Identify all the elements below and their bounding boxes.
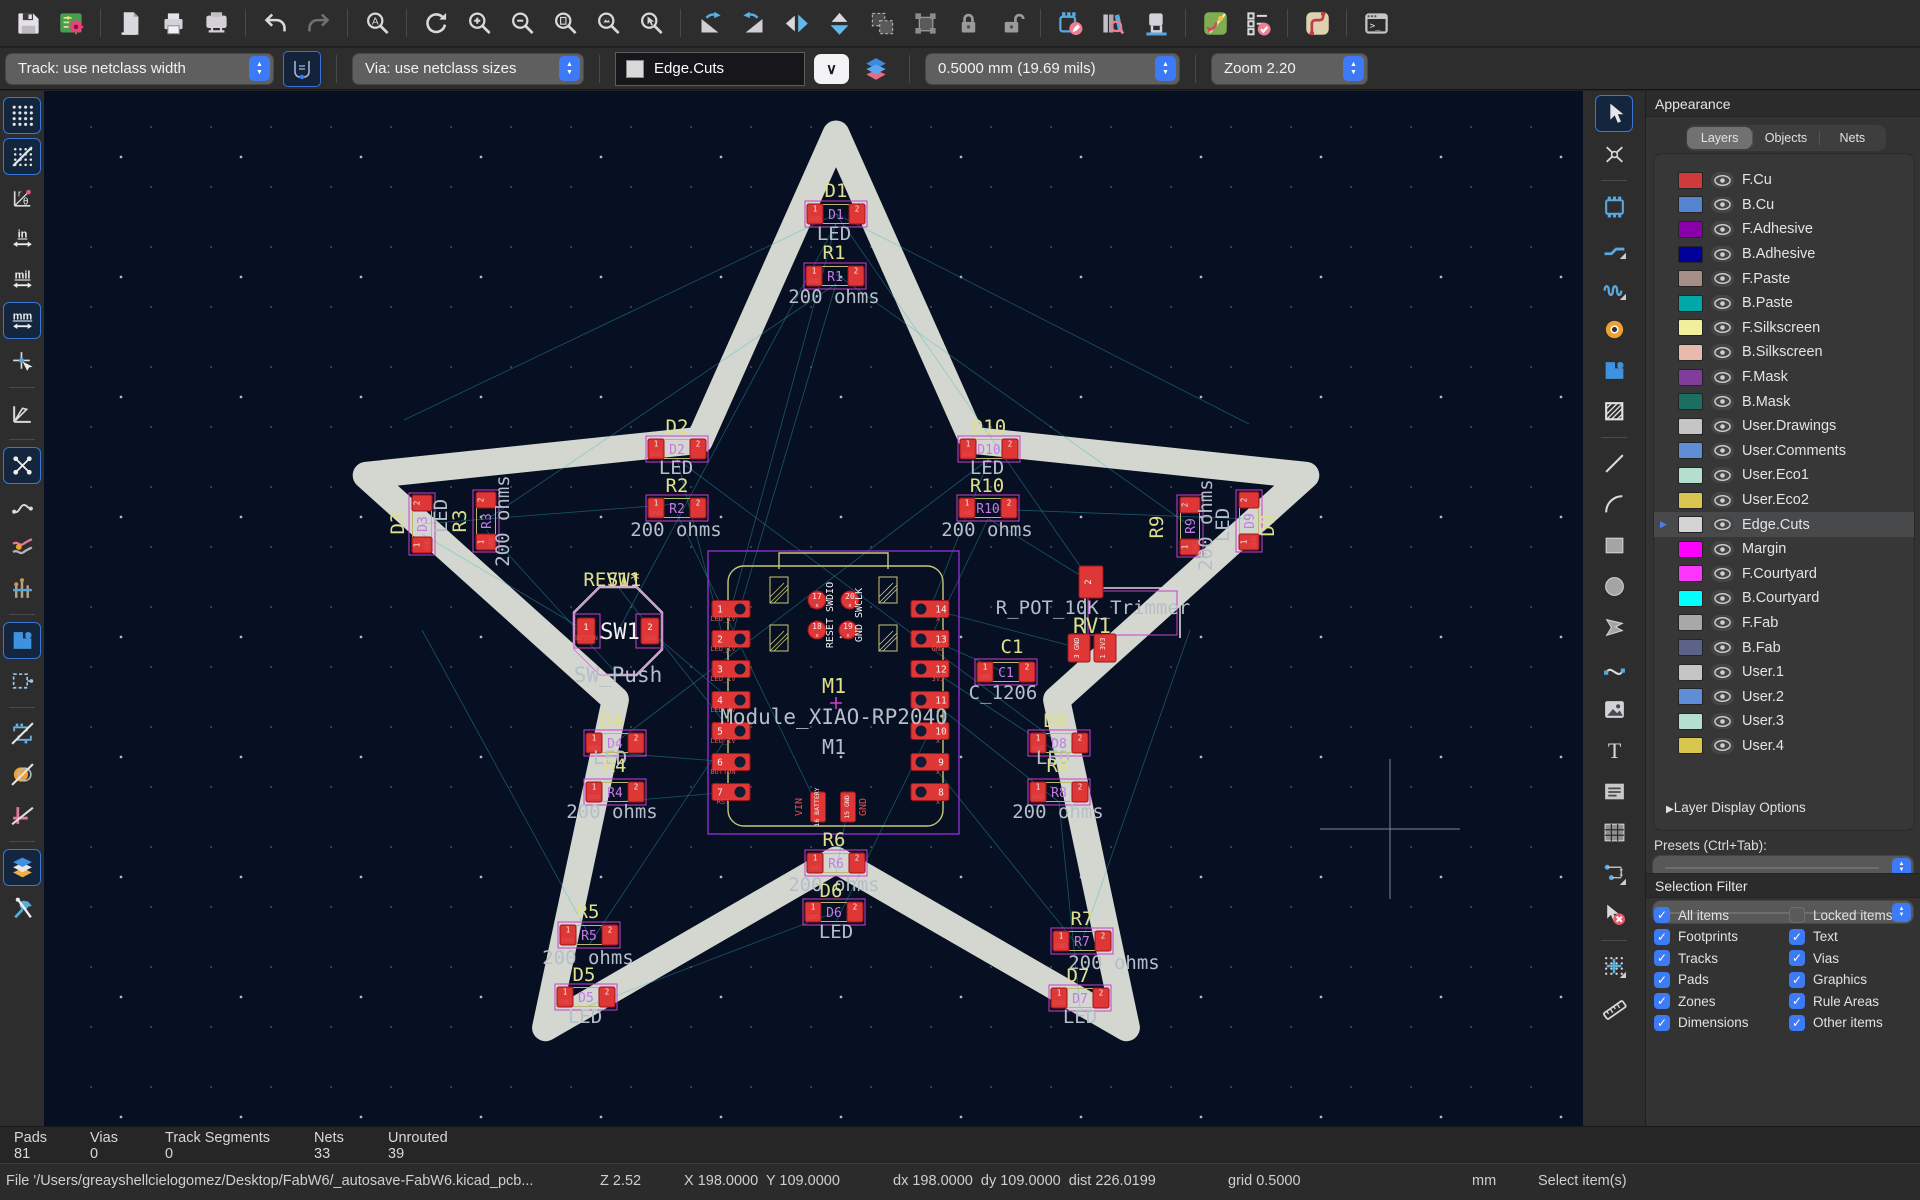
grid-origin-button[interactable] — [1595, 948, 1633, 985]
svg-text:1: 1 — [477, 540, 486, 545]
checkbox-icon[interactable]: ✓ — [1789, 929, 1805, 945]
svg-text:2: 2 — [854, 267, 859, 276]
zoom-fit-page-button[interactable] — [545, 4, 585, 42]
grid-combo[interactable]: 0.5000 mm (19.69 mils) ▲▼ — [925, 53, 1180, 85]
tab-nets[interactable]: Nets — [1820, 127, 1885, 149]
checkbox-icon[interactable]: ✓ — [1654, 972, 1670, 988]
layer-color-swatch[interactable] — [1678, 688, 1703, 705]
filter-text[interactable]: ✓Text — [1789, 929, 1916, 945]
svg-text:T: T — [1607, 739, 1620, 763]
checkbox-icon[interactable]: ✓ — [1654, 950, 1670, 966]
layer-row-user-eco1[interactable]: User.Eco1 — [1654, 463, 1914, 488]
eye-icon — [1714, 273, 1731, 284]
layer-dropdown-button[interactable]: ∨ — [814, 54, 849, 84]
place-table-button[interactable] — [1595, 814, 1633, 851]
svg-text:1: 1 — [654, 499, 659, 508]
highlight-nets-button[interactable] — [3, 529, 41, 566]
net-inspector-button[interactable] — [1297, 4, 1337, 42]
svg-text:x: x — [936, 768, 940, 776]
layer-name: F.Adhesive — [1742, 221, 1813, 237]
svg-text:2: 2 — [855, 854, 860, 863]
svg-text:x: x — [936, 737, 940, 745]
layer-visibility-toggle[interactable] — [1711, 541, 1734, 557]
drc-icon — [1245, 10, 1272, 37]
stat-nets: Nets33 — [314, 1130, 344, 1162]
layer-color-swatch[interactable] — [1678, 196, 1703, 213]
layer-row-f-adhesive[interactable]: F.Adhesive — [1654, 217, 1914, 242]
svg-text:1: 1 — [592, 783, 597, 792]
toolbar-separator — [347, 9, 348, 37]
layer-name: B.Adhesive — [1742, 246, 1815, 262]
auto-track-width-toggle[interactable] — [283, 51, 321, 87]
filter-label: Rule Areas — [1813, 994, 1879, 1009]
sketch-tracks-button[interactable] — [3, 797, 41, 834]
svg-text:R6: R6 — [828, 857, 844, 872]
filter-zones[interactable]: ✓Zones — [1654, 993, 1789, 1009]
svg-text:BUTTON: BUTTON — [574, 634, 598, 642]
svg-text:LED_1V: LED_1V — [710, 675, 736, 683]
layer-visibility-toggle[interactable] — [1711, 197, 1734, 213]
eye-icon — [1714, 667, 1731, 678]
appearance-title: Appearance — [1646, 91, 1920, 117]
place-footprint-button[interactable] — [1595, 188, 1633, 225]
layer-visibility-toggle[interactable] — [1711, 295, 1734, 311]
layer-row-user-eco2[interactable]: User.Eco2 — [1654, 488, 1914, 513]
flip-horizontal-button[interactable] — [776, 4, 816, 42]
sketch-footprints-button[interactable] — [3, 715, 41, 752]
net-colors-button[interactable] — [3, 570, 41, 607]
tab-layers[interactable]: Layers — [1687, 127, 1752, 149]
layer-visibility-toggle[interactable] — [1711, 369, 1734, 385]
stat-track-segments: Track Segments0 — [165, 1130, 270, 1162]
divider — [1195, 55, 1196, 83]
layer-name: F.Cu — [1742, 172, 1772, 188]
net-inspector-icon — [1304, 10, 1331, 37]
layer-manager-toggle[interactable] — [858, 50, 894, 88]
properties-tools-button[interactable] — [3, 890, 41, 927]
svg-text:2: 2 — [413, 501, 422, 506]
svg-text:2: 2 — [717, 635, 723, 646]
status-dxdy: dx 198.0000 dy 109.0000 dist 226.0199 — [893, 1173, 1156, 1189]
svg-text:D10: D10 — [972, 416, 1006, 438]
layer-row-f-silkscreen[interactable]: F.Silkscreen — [1654, 316, 1914, 341]
checkbox-icon[interactable]: ✓ — [1789, 950, 1805, 966]
layer-visibility-toggle[interactable] — [1711, 271, 1734, 287]
layer-row-f-cu[interactable]: F.Cu — [1654, 168, 1914, 193]
units-inches-icon: in — [10, 226, 35, 251]
refresh-button[interactable] — [416, 4, 456, 42]
svg-text:2: 2 — [1078, 734, 1083, 743]
layer-display-options[interactable]: ▶Layer Display Options — [1666, 800, 1806, 815]
via-size-combo[interactable]: Via: use netclass sizes ▲▼ — [352, 53, 584, 85]
eye-icon — [1714, 396, 1731, 407]
layer-name: User.4 — [1742, 738, 1784, 754]
eye-icon — [1714, 691, 1731, 702]
layers-listbox: F.CuB.CuF.AdhesiveB.AdhesiveF.PasteB.Pas… — [1653, 153, 1915, 831]
page-settings-button[interactable] — [110, 4, 150, 42]
filter-pads[interactable]: ✓Pads — [1654, 972, 1789, 988]
layer-name: B.Paste — [1742, 295, 1793, 311]
svg-text:R2: R2 — [666, 475, 689, 497]
zoom-selection-button[interactable] — [631, 4, 671, 42]
layer-visibility-toggle[interactable] — [1711, 664, 1734, 680]
select-icon — [1602, 101, 1627, 126]
stat-label: Vias — [90, 1130, 118, 1146]
draw-bezier-icon — [1602, 656, 1627, 681]
zoom-out-button[interactable] — [502, 4, 542, 42]
checkbox-icon[interactable]: ✓ — [1654, 929, 1670, 945]
svg-text:BUTTON: BUTTON — [710, 768, 735, 776]
units-mils-button[interactable]: mil — [3, 261, 41, 298]
svg-text:17: 17 — [812, 592, 822, 601]
filter-dimensions[interactable]: ✓Dimensions — [1654, 1015, 1789, 1031]
eye-icon — [1714, 740, 1731, 751]
layer-visibility-toggle[interactable] — [1711, 467, 1734, 483]
cursor-shape-icon — [10, 349, 35, 374]
layer-row-user-drawings[interactable]: User.Drawings — [1654, 414, 1914, 439]
svg-text:D5: D5 — [573, 964, 596, 986]
local-ratsnest-button[interactable] — [1595, 136, 1633, 173]
svg-text:200 ohms: 200 ohms — [788, 286, 880, 308]
filter-graphics[interactable]: ✓Graphics — [1789, 972, 1916, 988]
layer-color-swatch[interactable] — [1678, 492, 1703, 509]
tab-objects[interactable]: Objects — [1753, 127, 1818, 149]
layer-row-b-courtyard[interactable]: B.Courtyard — [1654, 586, 1914, 611]
tune-length-button[interactable] — [1595, 270, 1633, 307]
rotate-ccw-button[interactable] — [690, 4, 730, 42]
layer-color-swatch[interactable] — [1678, 369, 1703, 386]
filter-rule-areas[interactable]: ✓Rule Areas — [1789, 993, 1916, 1009]
checkbox-icon[interactable]: ✓ — [1654, 993, 1670, 1009]
layer-visibility-toggle[interactable] — [1711, 640, 1734, 656]
highlight-nets-icon — [10, 535, 35, 560]
units-mils-icon: mil — [10, 267, 35, 292]
toolbar-separator — [9, 614, 35, 615]
svg-text:1: 1 — [811, 903, 816, 912]
svg-text:GND: GND — [644, 634, 656, 642]
status-units: mm — [1472, 1173, 1496, 1189]
drc-button[interactable] — [1238, 4, 1278, 42]
svg-text:1: 1 — [654, 440, 659, 449]
filter-vias[interactable]: ✓Vias — [1789, 950, 1916, 966]
stat-value: 0 — [165, 1146, 270, 1162]
layer-color-swatch[interactable] — [1678, 639, 1703, 656]
properties-tools-icon — [10, 896, 35, 921]
layer-row-b-adhesive[interactable]: B.Adhesive — [1654, 242, 1914, 267]
save-button[interactable] — [8, 4, 48, 42]
filter-all-items[interactable]: ✓All items — [1654, 907, 1789, 923]
layer-color-swatch[interactable] — [1678, 270, 1703, 287]
place-image-button[interactable] — [1595, 691, 1633, 728]
layer-row-b-silkscreen[interactable]: B.Silkscreen — [1654, 340, 1914, 365]
place-via-button[interactable] — [1595, 311, 1633, 348]
svg-text:1: 1 — [812, 267, 817, 276]
find-button[interactable]: A — [357, 4, 397, 42]
stat-value: 81 — [14, 1146, 47, 1162]
layer-visibility-toggle[interactable] — [1711, 590, 1734, 606]
svg-text:1: 1 — [1240, 540, 1249, 545]
svg-text:2: 2 — [696, 499, 701, 508]
layer-name: F.Silkscreen — [1742, 320, 1820, 336]
svg-text:R6: R6 — [823, 829, 846, 851]
layer-color-swatch[interactable] — [1678, 737, 1703, 754]
route-tracks-button[interactable] — [1595, 229, 1633, 266]
layer-row-edge-cuts[interactable]: ▶Edge.Cuts — [1654, 512, 1914, 537]
zoom-fit-objects-button[interactable] — [588, 4, 628, 42]
svg-text:R8: R8 — [1047, 755, 1070, 777]
python-console-button[interactable]: >_ — [1356, 4, 1396, 42]
place-text-button[interactable]: T — [1595, 732, 1633, 769]
place-textbox-icon — [1602, 779, 1627, 804]
filter-footprints[interactable]: ✓Footprints — [1654, 929, 1789, 945]
sketch-footprints-icon — [10, 721, 35, 746]
board-setup-button[interactable] — [51, 4, 91, 42]
draw-polygon-button[interactable] — [1595, 609, 1633, 646]
layer-color-swatch[interactable] — [1678, 442, 1703, 459]
save-icon — [15, 10, 42, 37]
toolbar-separator — [9, 439, 35, 440]
svg-text:>_: >_ — [1369, 21, 1380, 31]
checkbox-icon[interactable]: ✓ — [1789, 993, 1805, 1009]
curved-ratsnest-button[interactable] — [3, 488, 41, 525]
place-textbox-button[interactable] — [1595, 773, 1633, 810]
layer-row-user-comments[interactable]: User.Comments — [1654, 439, 1914, 464]
layer-visibility-toggle[interactable] — [1711, 344, 1734, 360]
sketch-pads-button[interactable] — [3, 756, 41, 793]
layer-name: F.Mask — [1742, 369, 1788, 385]
layer-color-swatch[interactable] — [1678, 516, 1703, 533]
svg-text:12: 12 — [935, 665, 946, 676]
checkbox-icon[interactable]: ✓ — [1654, 1015, 1670, 1031]
flip-vertical-button[interactable] — [819, 4, 859, 42]
draw-bezier-button[interactable] — [1595, 650, 1633, 687]
lock-button[interactable] — [948, 4, 988, 42]
polar-coords-button[interactable]: rθ — [3, 179, 41, 216]
toolbar-separator — [245, 9, 246, 37]
units-mm-button[interactable]: mm — [3, 302, 41, 339]
layer-visibility-toggle[interactable] — [1711, 172, 1734, 188]
svg-text:D2: D2 — [666, 416, 689, 438]
zoom-combo[interactable]: Zoom 2.20 ▲▼ — [1211, 53, 1368, 85]
unlock-button[interactable] — [991, 4, 1031, 42]
appearance-tabbar: LayersObjectsNets — [1686, 125, 1886, 151]
delete-tool-button[interactable] — [1595, 896, 1633, 933]
place-via-icon — [1602, 317, 1627, 342]
grid-override-button[interactable] — [3, 138, 41, 175]
toolbar-separator — [1346, 9, 1347, 37]
layer-color-swatch[interactable] — [1678, 418, 1703, 435]
plot-button[interactable] — [196, 4, 236, 42]
layer-visibility-toggle[interactable] — [1711, 246, 1734, 262]
layer-color-swatch[interactable] — [1678, 590, 1703, 607]
layer-row-user-2[interactable]: User.2 — [1654, 684, 1914, 709]
layer-color-swatch[interactable] — [1678, 393, 1703, 410]
dimension-button[interactable] — [1595, 855, 1633, 892]
layer-visibility-toggle[interactable] — [1711, 713, 1734, 729]
filter-label: Zones — [1678, 994, 1716, 1009]
svg-text:VIN: VIN — [794, 798, 805, 816]
eye-icon — [1714, 249, 1731, 260]
svg-text:GND: GND — [809, 215, 821, 223]
checkbox-icon[interactable]: ✓ — [1654, 907, 1670, 923]
pcb-canvas[interactable]: 12GNDD112GNDR112GNDD212GNDR212GNDD1012GN… — [44, 91, 1583, 1126]
print-button[interactable] — [153, 4, 193, 42]
layer-visibility-toggle[interactable] — [1711, 221, 1734, 237]
layer-visibility-toggle[interactable] — [1711, 517, 1734, 533]
layer-row-b-cu[interactable]: B.Cu — [1654, 193, 1914, 218]
rotate-cw-button[interactable] — [733, 4, 773, 42]
layer-visibility-toggle[interactable] — [1711, 320, 1734, 336]
zone-filled-button[interactable] — [3, 622, 41, 659]
layer-row-f-paste[interactable]: F.Paste — [1654, 266, 1914, 291]
select-button[interactable] — [1595, 95, 1633, 132]
rotate-ccw-icon — [697, 10, 724, 37]
svg-text:2: 2 — [696, 440, 701, 449]
board-setup-icon — [58, 10, 85, 37]
track-width-combo[interactable]: Track: use netclass width ▲▼ — [5, 53, 274, 85]
layer-visibility-toggle[interactable] — [1711, 492, 1734, 508]
layer-color-swatch[interactable] — [1678, 467, 1703, 484]
layer-color-swatch[interactable] — [1678, 295, 1703, 312]
layer-row-user-4[interactable]: User.4 — [1654, 734, 1914, 759]
layer-color-swatch[interactable] — [1678, 664, 1703, 681]
layer-row-user-3[interactable]: User.3 — [1654, 709, 1914, 734]
svg-text:6: 6 — [717, 758, 723, 769]
stepper-icon: ▲▼ — [559, 56, 580, 81]
svg-text:M1: M1 — [822, 674, 846, 698]
layer-color-swatch[interactable] — [1678, 565, 1703, 582]
layer-visibility-toggle[interactable] — [1711, 394, 1734, 410]
footprint-browser-button[interactable] — [1093, 4, 1133, 42]
local-ratsnest-icon — [1602, 142, 1627, 167]
high-contrast-button[interactable] — [3, 849, 41, 886]
draw-arc-icon — [1602, 492, 1627, 517]
checkbox-icon[interactable]: ✓ — [1789, 972, 1805, 988]
lock-icon — [955, 10, 982, 37]
checkbox-icon[interactable] — [1789, 907, 1805, 923]
layer-color-swatch[interactable] — [1678, 344, 1703, 361]
layer-row-b-mask[interactable]: B.Mask — [1654, 389, 1914, 414]
layer-row-f-fab[interactable]: F.Fab — [1654, 611, 1914, 636]
zone-outline-button[interactable] — [3, 663, 41, 700]
svg-text:R4: R4 — [604, 755, 627, 777]
measure-button[interactable] — [1595, 989, 1633, 1026]
layer-visibility-toggle[interactable] — [1711, 566, 1734, 582]
layer-color-swatch[interactable] — [1678, 221, 1703, 238]
svg-text:2: 2 — [1007, 499, 1012, 508]
constrain-45-button[interactable] — [3, 395, 41, 432]
rule-area-button[interactable] — [1595, 393, 1633, 430]
checkbox-icon[interactable]: ✓ — [1789, 1015, 1805, 1031]
active-layer-selector[interactable]: Edge.Cuts — [615, 52, 805, 86]
svg-text:1: 1 — [592, 734, 597, 743]
svg-text:GND: GND — [423, 539, 431, 551]
toolbar-separator — [680, 9, 681, 37]
zoom-in-button[interactable] — [459, 4, 499, 42]
units-inches-button[interactable]: in — [3, 220, 41, 257]
svg-text:D1: D1 — [825, 180, 848, 202]
layer-color-swatch[interactable] — [1678, 172, 1703, 189]
svg-text:3: 3 — [717, 665, 723, 676]
toolbar-separator — [1185, 9, 1186, 37]
eye-icon — [1714, 544, 1731, 555]
group-button[interactable] — [862, 4, 902, 42]
filter-tracks[interactable]: ✓Tracks — [1654, 950, 1789, 966]
ungroup-button[interactable] — [905, 4, 945, 42]
unlock-icon — [998, 10, 1025, 37]
via-size-label: Via: use netclass sizes — [365, 60, 549, 77]
layer-visibility-toggle[interactable] — [1711, 615, 1734, 631]
redo-button[interactable] — [298, 4, 338, 42]
cursor-shape-button[interactable] — [3, 343, 41, 380]
stepper-icon: ▲▼ — [1155, 56, 1176, 81]
svg-text:D5: D5 — [578, 991, 594, 1006]
zoom-fit-page-icon — [552, 10, 579, 37]
stat-value: 33 — [314, 1146, 344, 1162]
draw-polygon-icon — [1602, 615, 1627, 640]
draw-zone-button[interactable] — [1595, 352, 1633, 389]
layer-color-swatch[interactable] — [1678, 541, 1703, 558]
layer-color-swatch[interactable] — [1678, 319, 1703, 336]
svg-text:GND: GND — [1250, 536, 1258, 548]
svg-text:R10: R10 — [970, 475, 1004, 497]
stat-value: 39 — [388, 1146, 448, 1162]
grid-label: 0.5000 mm (19.69 mils) — [938, 60, 1145, 77]
layer-row-b-paste[interactable]: B.Paste — [1654, 291, 1914, 316]
layer-color-swatch[interactable] — [1678, 246, 1703, 263]
layer-color-swatch[interactable] — [1678, 713, 1703, 730]
draw-line-button[interactable] — [1595, 445, 1633, 482]
zoom-selection-icon — [638, 10, 665, 37]
layer-row-b-fab[interactable]: B.Fab — [1654, 635, 1914, 660]
filter-locked-items[interactable]: Locked items — [1789, 907, 1916, 923]
layer-row-margin[interactable]: Margin — [1654, 537, 1914, 562]
draw-rectangle-button[interactable] — [1595, 527, 1633, 564]
svg-text:R4: R4 — [607, 786, 623, 801]
layer-visibility-toggle[interactable] — [1711, 689, 1734, 705]
footprint-editor-button[interactable] — [1050, 4, 1090, 42]
svg-text:D2: D2 — [669, 443, 685, 458]
threed-viewer-button[interactable] — [1136, 4, 1176, 42]
ungroup-icon — [912, 10, 939, 37]
filter-other-items[interactable]: ✓Other items — [1789, 1015, 1916, 1031]
layer-row-f-mask[interactable]: F.Mask — [1654, 365, 1914, 390]
toolbar-separator — [1601, 437, 1627, 438]
layer-color-swatch[interactable] — [1678, 614, 1703, 631]
draw-arc-button[interactable] — [1595, 486, 1633, 523]
layer-row-f-courtyard[interactable]: F.Courtyard — [1654, 562, 1914, 587]
update-pcb-button[interactable] — [1195, 4, 1235, 42]
status-file: File '/Users/greayshellcielogomez/Deskto… — [6, 1173, 533, 1189]
undo-button[interactable] — [255, 4, 295, 42]
svg-text:in: in — [17, 228, 27, 240]
layer-visibility-toggle[interactable] — [1711, 418, 1734, 434]
layer-visibility-toggle[interactable] — [1711, 738, 1734, 754]
draw-circle-button[interactable] — [1595, 568, 1633, 605]
selection-filter-title: Selection Filter — [1646, 873, 1920, 898]
layer-visibility-toggle[interactable] — [1711, 443, 1734, 459]
svg-text:1: 1 — [1059, 932, 1064, 941]
show-ratsnest-button[interactable] — [3, 447, 41, 484]
rule-area-icon — [1602, 399, 1627, 424]
layer-row-user-1[interactable]: User.1 — [1654, 660, 1914, 685]
filter-label: Footprints — [1678, 929, 1738, 944]
svg-text:2: 2 — [1078, 783, 1083, 792]
svg-text:GND: GND — [588, 793, 600, 801]
stat-unrouted: Unrouted39 — [388, 1130, 448, 1162]
layer-name: B.Mask — [1742, 394, 1790, 410]
grid-visibility-button[interactable] — [3, 97, 41, 134]
